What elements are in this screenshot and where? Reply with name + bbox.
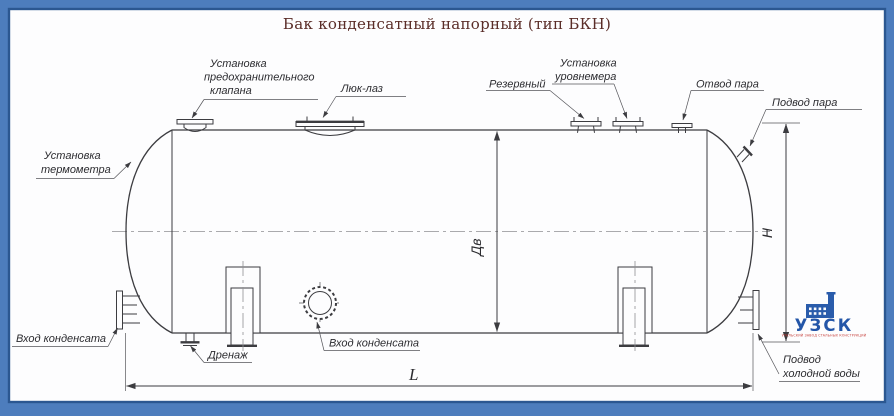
label-cold-water-line2: холодной воды <box>782 368 860 380</box>
label-drain: Дренаж <box>206 350 248 362</box>
label-condensate-inlet-front: Вход конденсата <box>329 338 419 350</box>
logo-name: УЗСК <box>795 316 854 335</box>
page-title: Бак конденсатный напорный (тип БКН) <box>283 15 611 33</box>
label-level-gauge-line1: Установка <box>559 58 617 70</box>
label-manhole: Люк-лаз <box>340 83 383 95</box>
drawing-canvas: Бак конденсатный напорный (тип БКН) <box>0 0 894 416</box>
label-reserve: Резервный <box>489 79 545 91</box>
dim-l-label: L <box>408 365 418 384</box>
label-safety-valve-line1: Установка <box>209 58 267 70</box>
logo-tagline: УРАЛЬСКИЙ ЗАВОД СТАЛЬНЫХ КОНСТРУКЦИЙ <box>782 333 867 338</box>
label-safety-valve-line2: предохранительного <box>204 72 315 84</box>
inner-frame <box>9 9 885 402</box>
label-cold-water-line1: Подвод <box>783 354 821 366</box>
dim-h-label: H <box>759 227 775 238</box>
label-safety-valve-line3: клапана <box>210 85 252 97</box>
label-steam-outlet: Отвод пара <box>696 79 759 91</box>
drawing-page: Бак конденсатный напорный (тип БКН) <box>0 0 894 416</box>
label-condensate-inlet-left: Вход конденсата <box>16 333 106 345</box>
label-level-gauge-line2: уровнемера <box>554 71 616 83</box>
label-thermometer-line1: Установка <box>43 150 101 162</box>
label-steam-inlet: Подвод пара <box>772 97 837 109</box>
label-thermometer-line2: термометра <box>41 164 111 176</box>
dim-dv-label: Дв <box>468 238 484 257</box>
